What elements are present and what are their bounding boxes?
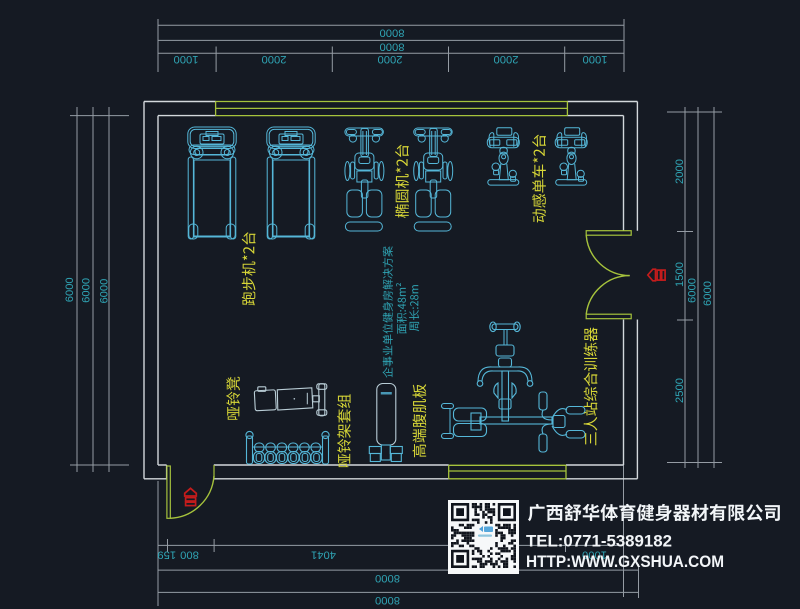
svg-text:2000: 2000 [378,53,403,65]
svg-text:TEL:0771-5389182: TEL:0771-5389182 [526,532,672,551]
svg-text:2500: 2500 [674,378,686,403]
svg-text:HTTP:WWW.GXSHUA.COM: HTTP:WWW.GXSHUA.COM [526,552,724,571]
svg-text:6000: 6000 [702,281,714,306]
svg-text:8000: 8000 [375,572,400,584]
svg-text:2000: 2000 [674,159,686,184]
svg-text:1000: 1000 [583,53,608,65]
svg-text:4041: 4041 [311,549,336,561]
svg-text:6000: 6000 [81,278,93,303]
svg-text:8000: 8000 [380,27,405,39]
svg-text:6000: 6000 [64,277,76,302]
svg-text:800: 800 [180,549,199,561]
svg-text:6000: 6000 [686,278,698,303]
svg-text:6000: 6000 [98,279,110,304]
svg-text:8000: 8000 [380,40,405,52]
svg-text:8000: 8000 [375,594,400,606]
svg-text:1500: 1500 [674,262,686,287]
svg-text:159: 159 [157,549,176,561]
svg-text:2000: 2000 [262,53,287,65]
svg-text:1000: 1000 [174,53,199,65]
svg-text:2000: 2000 [494,53,519,65]
